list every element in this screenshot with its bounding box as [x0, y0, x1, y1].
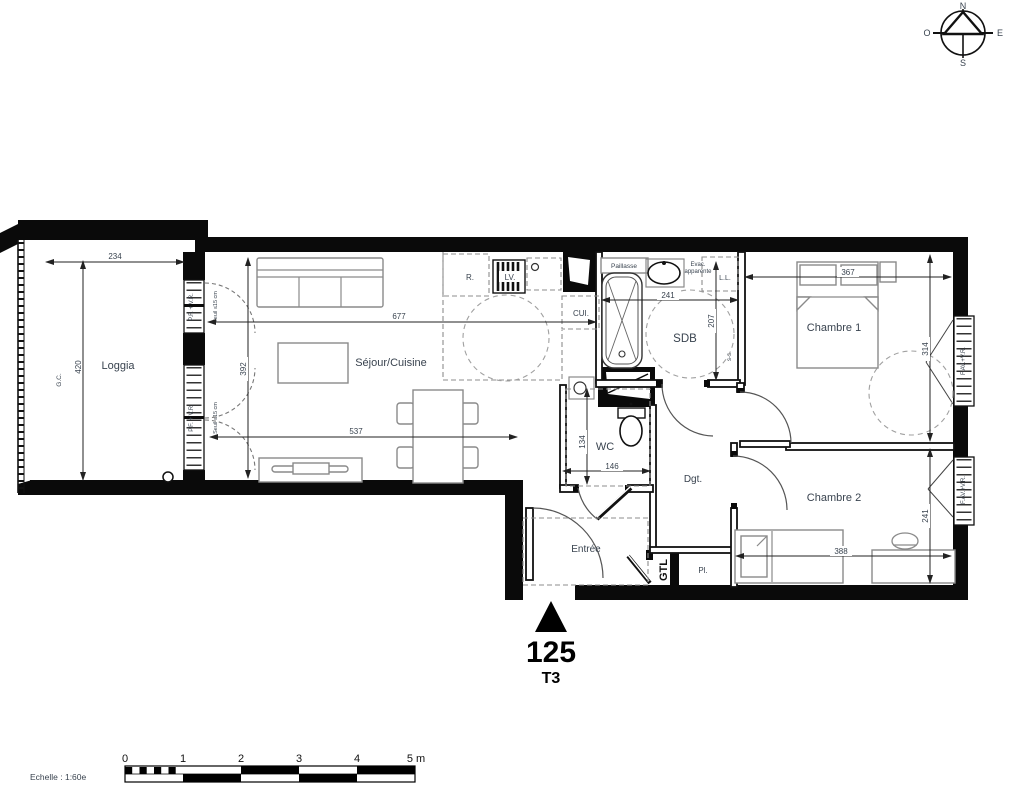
scale-tick-5: 5 m	[407, 753, 425, 765]
front-door-leaf	[526, 508, 533, 580]
sill-label: Seuil ≤15 cm	[213, 402, 219, 434]
washing-machine-label: L.L.	[719, 275, 731, 282]
chambre2-window: F.AV.+V.R.	[928, 457, 974, 525]
room-sdb: SDB	[673, 333, 697, 345]
scale-tick-2: 2	[238, 753, 244, 765]
dim-ch1-w: 367	[841, 268, 855, 277]
scale-tick-4: 4	[354, 753, 360, 765]
dim-ch2-h: 241	[921, 509, 930, 523]
dim-wc-w: 146	[605, 462, 619, 471]
loggia-drain	[163, 472, 173, 482]
dishwasher-label: LV.	[505, 273, 516, 282]
hand-basin	[569, 377, 594, 399]
window-label: P.F. + V.R.	[189, 293, 195, 321]
dim-loggia-h: 420	[74, 360, 83, 374]
sill-label: Seuil ≤15 cm	[213, 291, 219, 323]
unit-type: T3	[542, 670, 561, 687]
room-loggia: Loggia	[101, 360, 135, 372]
scale-tick-0: 0	[122, 753, 128, 765]
window-label: F.AV.+V.R.	[961, 476, 967, 504]
unit-title: 125 T3	[526, 636, 576, 687]
washbasin	[646, 259, 684, 287]
window-label: P.F. + V.R.	[189, 404, 195, 432]
toilet	[618, 403, 645, 447]
sink	[527, 258, 561, 290]
room-chambre2: Chambre 2	[807, 492, 861, 504]
room-dgt: Dgt.	[684, 474, 702, 485]
window-label: F.AV.+V.R.	[961, 347, 967, 375]
turning-circle-ch1	[869, 351, 953, 435]
entrance-arrow-icon	[535, 601, 567, 632]
room-placard: Pl.	[698, 566, 707, 575]
unit-number: 125	[526, 636, 576, 669]
fridge-label: R.	[466, 273, 474, 282]
sofa	[257, 258, 383, 307]
dim-sejour-w2: 537	[349, 427, 363, 436]
loggia-window-1: P.F. + V.R. Seuil ≤15 cm	[184, 280, 255, 333]
bathroom: Paillasse Evac. apparente L.L. s-s	[601, 257, 738, 378]
bathtub	[602, 273, 642, 368]
compass-west: O	[923, 28, 930, 38]
room-chambre1: Chambre 1	[807, 322, 861, 334]
room-wc: WC	[596, 441, 614, 453]
dim-ch2-w: 388	[834, 547, 848, 556]
towel-rail-label: s-s	[727, 353, 733, 361]
dim-ch1-h: 314	[921, 342, 930, 356]
scale-tick-1: 1	[180, 753, 186, 765]
dim-wc-h: 134	[578, 435, 587, 449]
gc-label: G.C.	[56, 373, 63, 387]
chambre1-door-leaf	[740, 441, 790, 447]
loggia-glazing	[18, 240, 24, 493]
compass-north: N	[960, 1, 967, 11]
room-entree: Entrée	[571, 544, 601, 555]
nightstand	[880, 262, 896, 282]
evac-label: Evac.	[690, 262, 705, 268]
scale-tick-3: 3	[296, 753, 302, 765]
room-sejour: Séjour/Cuisine	[355, 357, 427, 369]
scale-caption: Echelle : 1:60e	[30, 772, 87, 782]
gtl-label: GTL	[658, 559, 670, 581]
counter-label: CUI.	[573, 309, 589, 318]
turning-circle-kitchen	[463, 295, 549, 381]
dim-sejour-h: 392	[239, 362, 248, 376]
duct-kitchen	[563, 252, 596, 292]
desk	[872, 533, 955, 583]
scale-bar: Echelle : 1:60e 0 1 2 3 4 5 m	[30, 753, 425, 782]
dim-sdb-h: 207	[707, 314, 716, 328]
double-bed	[797, 262, 878, 368]
compass-east: E	[997, 28, 1003, 38]
compass-rose: N S E O	[923, 1, 1003, 68]
chair	[892, 533, 918, 549]
compass-south: S	[960, 58, 966, 68]
evac-label2: apparente	[684, 269, 712, 275]
tv-cabinet	[259, 458, 362, 482]
chambre1-window: F.AV.+V.R.	[926, 316, 974, 406]
worktop-label: Paillasse	[611, 263, 637, 270]
coffee-table	[278, 343, 348, 383]
dim-sdb-w: 241	[661, 291, 675, 300]
dim-sejour-w: 677	[392, 312, 406, 321]
dim-loggia-w: 234	[108, 252, 122, 261]
floor-plan: N S E O	[0, 0, 1019, 800]
worktop: Paillasse	[601, 258, 648, 273]
floor-plan-page: N S E O	[0, 0, 1019, 800]
